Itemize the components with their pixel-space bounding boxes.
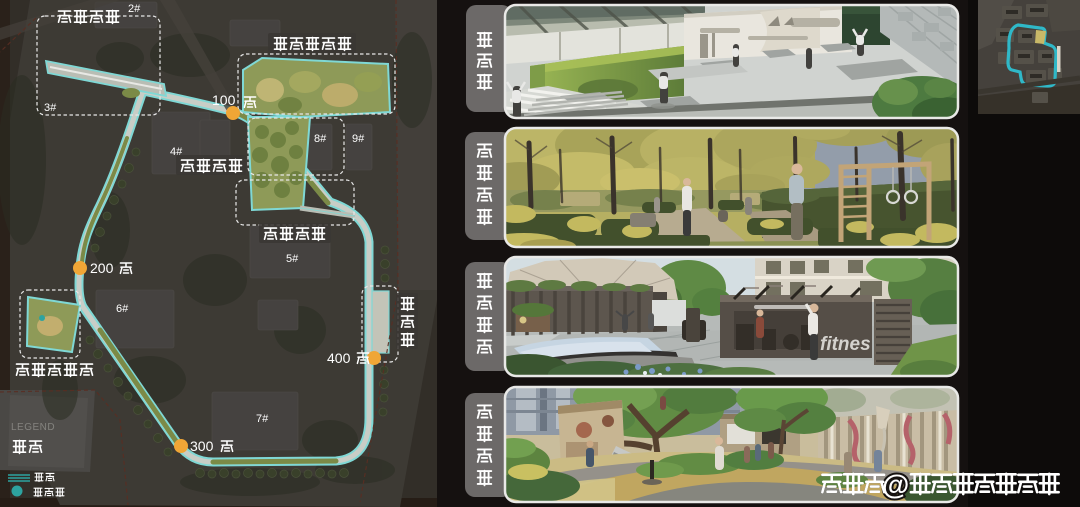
svg-text:5#: 5# — [286, 253, 299, 265]
svg-text:200: 200 — [90, 260, 114, 276]
svg-text:7#: 7# — [256, 413, 269, 425]
svg-text:2#: 2# — [128, 3, 141, 15]
svg-text:300: 300 — [190, 438, 214, 454]
svg-text:4#: 4# — [170, 146, 183, 158]
svg-text:100: 100 — [212, 92, 236, 108]
svg-text:@: @ — [882, 469, 909, 500]
svg-text:8#: 8# — [314, 133, 327, 145]
svg-text:3#: 3# — [44, 102, 57, 114]
svg-text:6#: 6# — [116, 303, 129, 315]
svg-text:9#: 9# — [352, 133, 365, 145]
svg-text:LEGEND: LEGEND — [11, 422, 55, 433]
svg-text:fitnes: fitnes — [820, 334, 871, 355]
svg-text:400: 400 — [327, 350, 351, 366]
